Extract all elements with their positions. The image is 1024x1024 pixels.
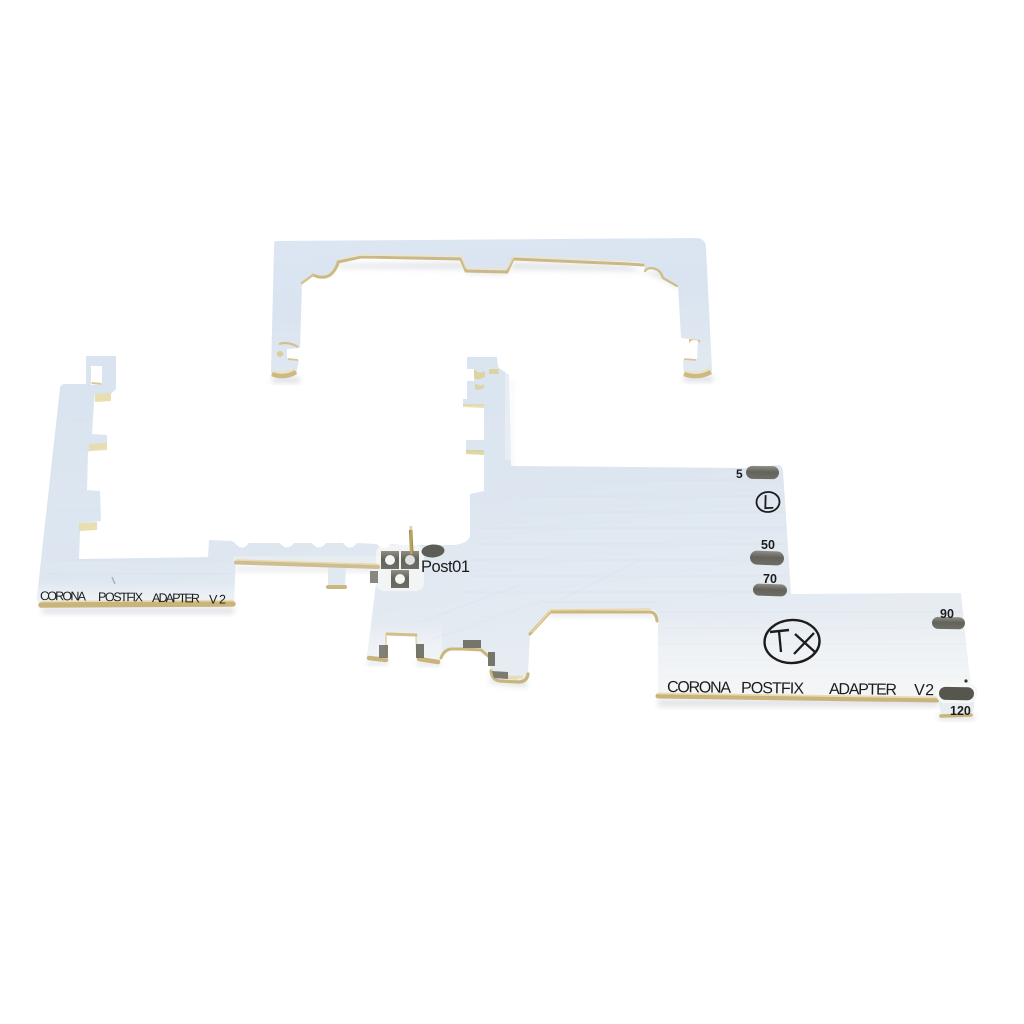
svg-text:50: 50 xyxy=(761,538,775,552)
svg-text:70: 70 xyxy=(763,572,777,586)
svg-text:90: 90 xyxy=(940,607,954,621)
svg-text:ADAPTER: ADAPTER xyxy=(152,591,200,605)
svg-text:POSTFIX: POSTFIX xyxy=(741,680,805,698)
svg-text:V2: V2 xyxy=(914,682,934,699)
svg-text:120: 120 xyxy=(950,704,971,718)
svg-text:CORONA: CORONA xyxy=(667,679,732,697)
svg-text:5: 5 xyxy=(736,467,743,481)
svg-text:POSTFIX: POSTFIX xyxy=(98,590,144,604)
svg-text:ADAPTER: ADAPTER xyxy=(829,681,897,699)
svg-text:Post01: Post01 xyxy=(421,558,470,576)
svg-text:CORONA: CORONA xyxy=(40,589,87,603)
